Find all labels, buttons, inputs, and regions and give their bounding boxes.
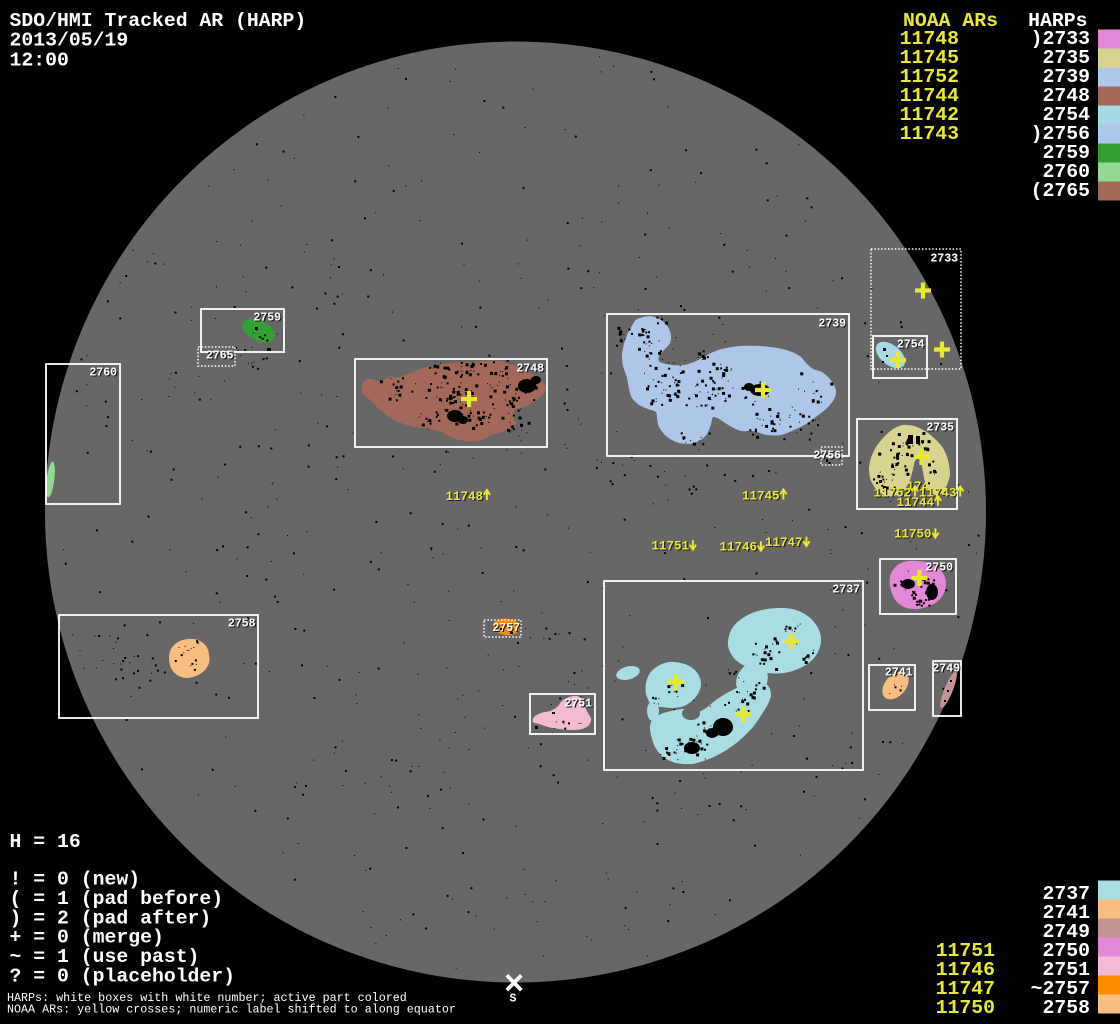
svg-text:2754: 2754 (897, 339, 925, 352)
svg-text:2749: 2749 (932, 663, 960, 676)
svg-text:SDO/HMI Tracked AR (HARP): SDO/HMI Tracked AR (HARP) (10, 10, 307, 32)
svg-text:11750: 11750 (936, 997, 995, 1019)
svg-text:2013/05/19: 2013/05/19 (10, 30, 129, 52)
svg-text:2733: 2733 (930, 253, 958, 266)
svg-text:2760: 2760 (89, 367, 117, 380)
svg-text:2751: 2751 (564, 698, 592, 711)
svg-text:11750: 11750 (894, 528, 932, 542)
svg-text:2737: 2737 (832, 584, 860, 597)
svg-text:2757: 2757 (492, 622, 520, 635)
svg-text:2741: 2741 (885, 667, 913, 680)
svg-text:11747: 11747 (765, 536, 803, 550)
svg-text:11744: 11744 (897, 496, 935, 510)
svg-text:2758: 2758 (1043, 997, 1090, 1019)
svg-text:2748: 2748 (516, 363, 544, 376)
svg-text:2765: 2765 (206, 350, 234, 363)
svg-text:NOAA ARs: yellow crosses; nume: NOAA ARs: yellow crosses; numeric label … (7, 1003, 456, 1017)
svg-text:11743: 11743 (900, 123, 959, 145)
svg-text:11745: 11745 (742, 490, 780, 504)
svg-text:2758: 2758 (228, 618, 256, 631)
svg-text:2735: 2735 (926, 422, 954, 435)
svg-text:11748: 11748 (446, 490, 484, 504)
svg-text:H = 16: H = 16 (10, 831, 81, 853)
svg-text:S: S (510, 993, 517, 1006)
svg-text:11746: 11746 (720, 541, 758, 555)
svg-text:12:00: 12:00 (10, 49, 69, 71)
svg-text:? = 0 (placeholder): ? = 0 (placeholder) (10, 966, 236, 988)
svg-text:2739: 2739 (818, 318, 846, 331)
svg-text:11751: 11751 (652, 540, 690, 554)
svg-text:(2765: (2765 (1031, 180, 1090, 202)
svg-text:2750: 2750 (925, 562, 953, 575)
svg-text:2759: 2759 (253, 312, 281, 325)
